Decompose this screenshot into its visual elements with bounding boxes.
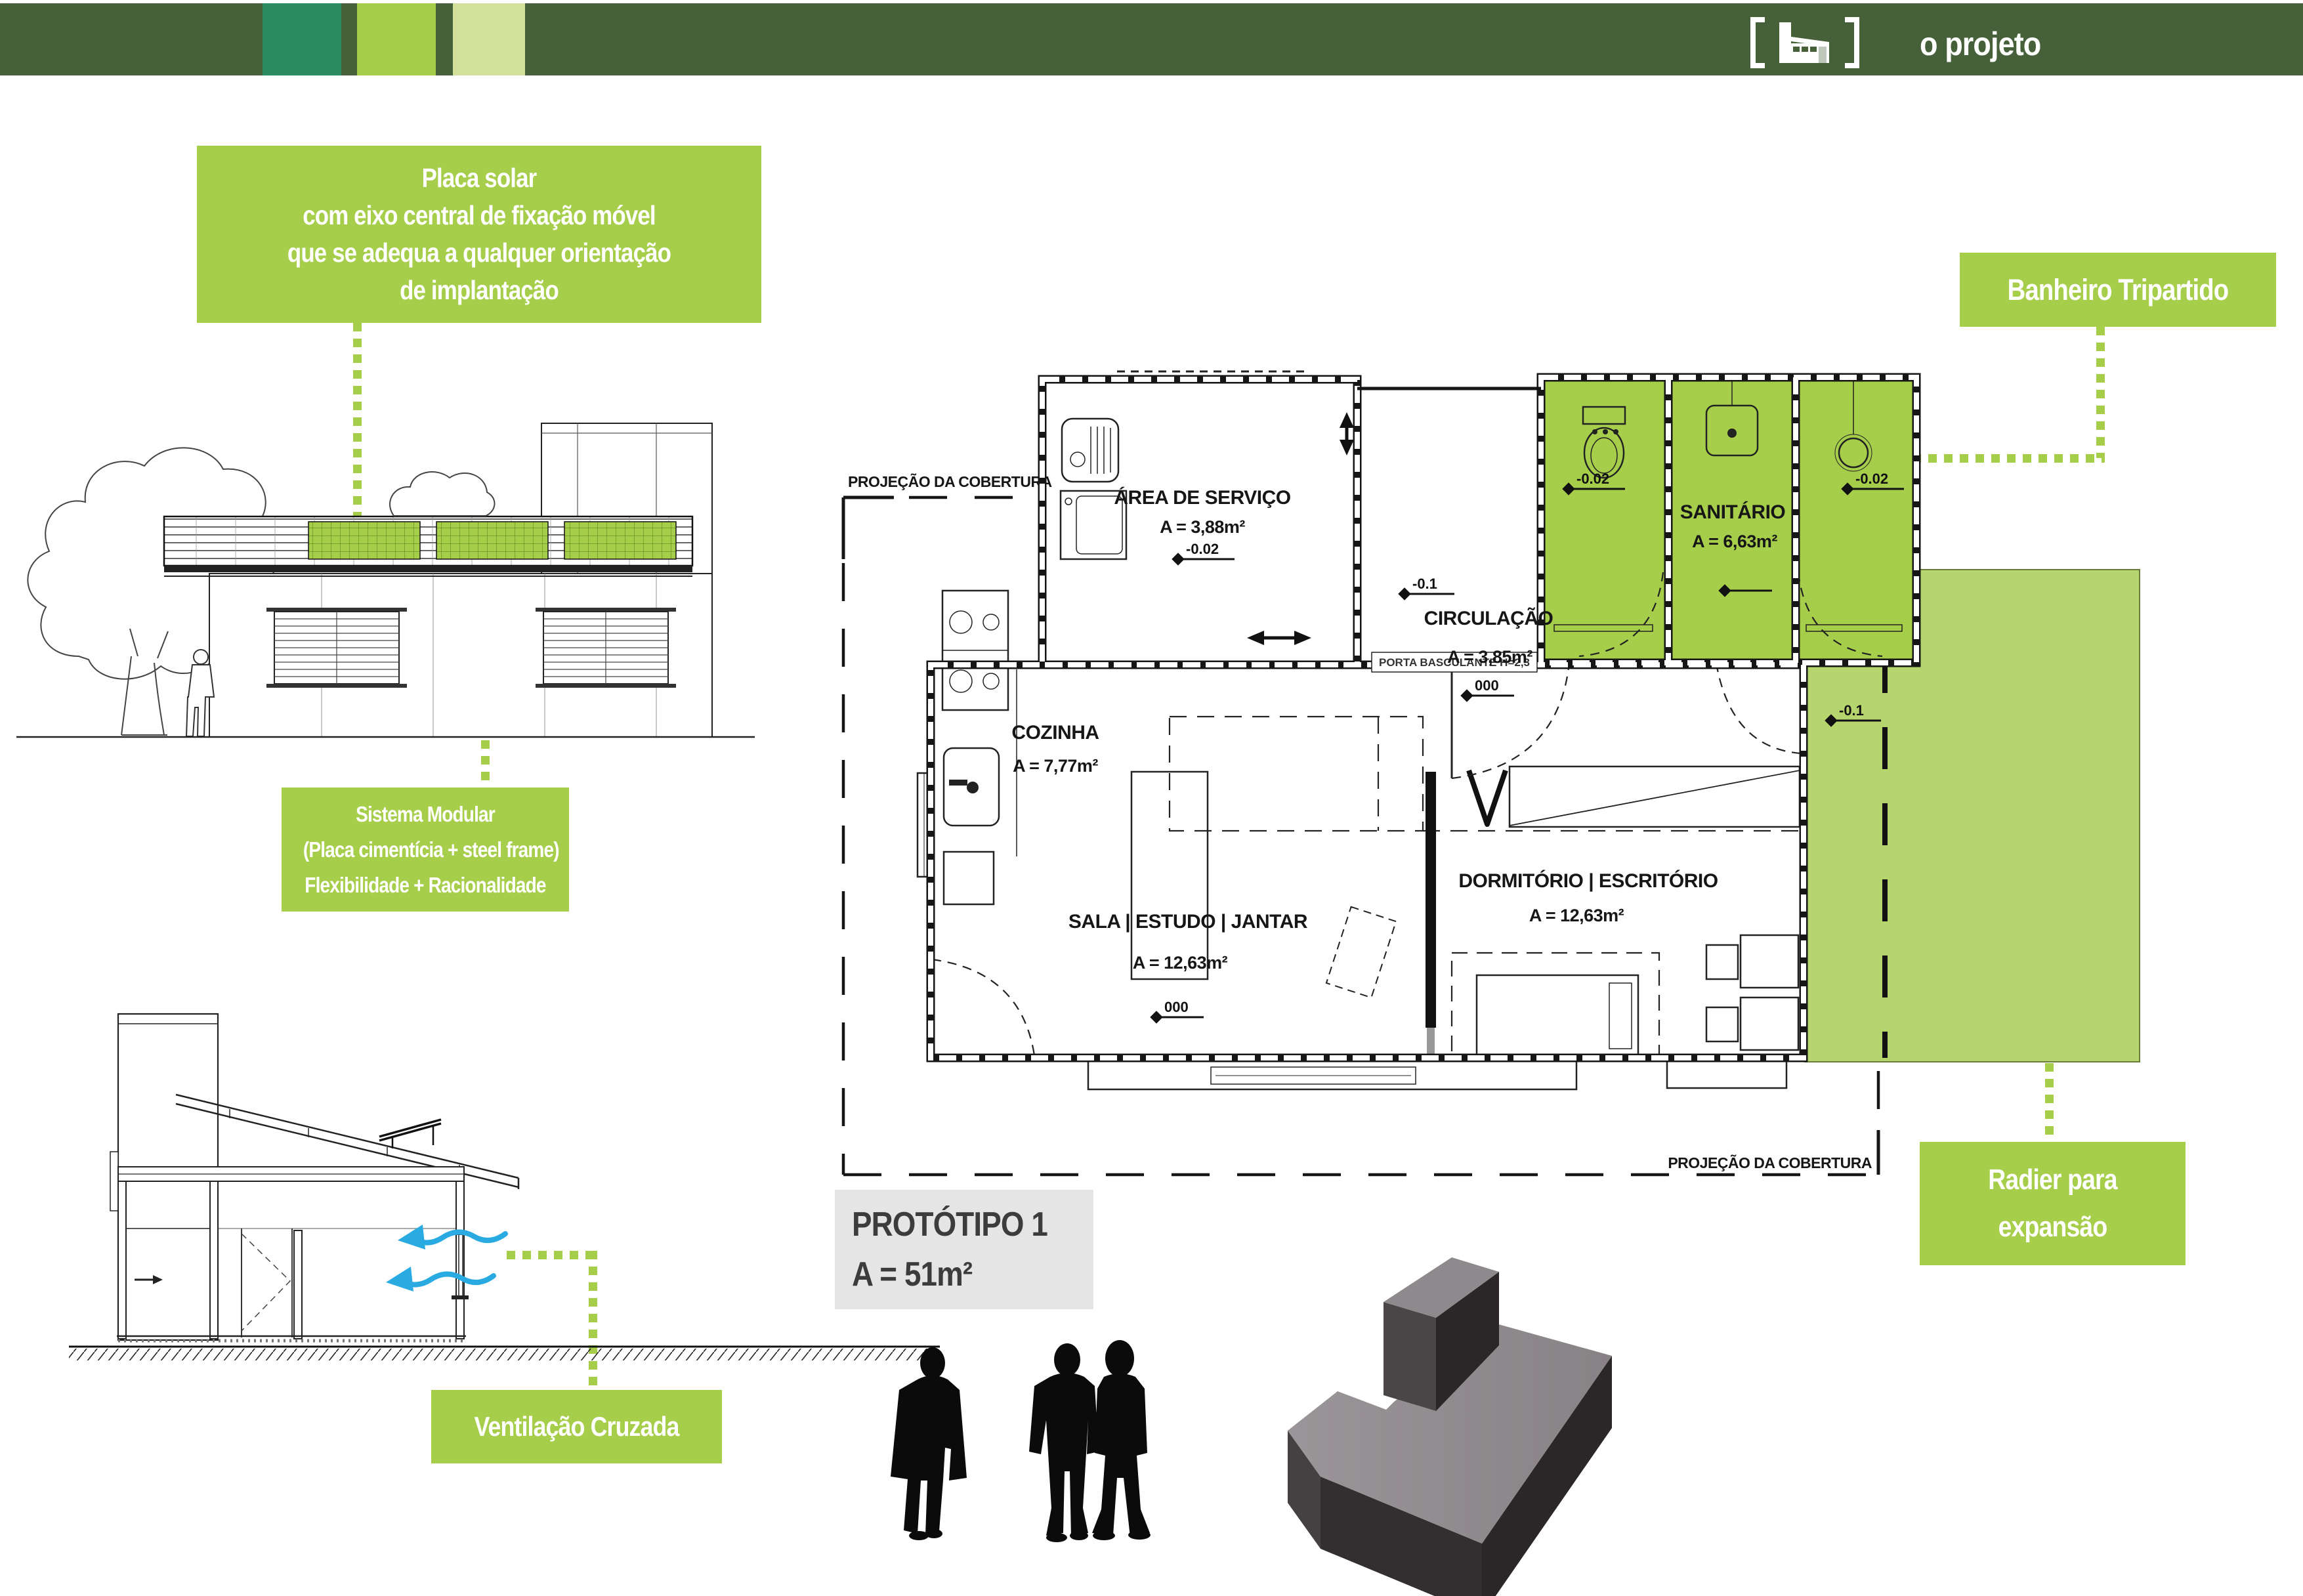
louver-window [536,608,676,688]
tree-icon [390,472,494,516]
svg-text:-0.1: -0.1 [1412,576,1437,592]
room-area: A = 12,63m² [1529,906,1624,925]
page-title: o projeto [1920,25,2168,63]
svg-text:000: 000 [1475,677,1499,694]
callout-line: Placa solar [240,159,719,197]
svg-text:-0.02: -0.02 [1186,541,1219,557]
roof-projection-label-top: PROJEÇÃO DA COBERTURA [848,472,1052,490]
callout-sistema-modular: Sistema Modular (Placa cimentícia + stee… [282,787,569,912]
callout-placa-solar: Placa solar com eixo central de fixação … [197,146,761,323]
wedge-shelf [1510,766,1800,827]
person-silhouette-icon [1029,1343,1099,1542]
section-door [242,1228,292,1337]
people-silhouettes [873,1332,1175,1595]
callout-line: Banheiro Tripartido [1983,253,2252,327]
roof-projection-label-bottom: PROJEÇÃO DA COBERTURA [1668,1154,1872,1171]
callout-line: (Placa cimentícia + steel frame) [303,832,547,868]
room-area: A = 7,77m² [1013,756,1098,776]
chair-dashed [1326,907,1396,997]
partition-wall [1426,772,1436,1028]
prototype-area: A = 51m² [852,1249,1065,1299]
wind-arrowhead-icon [386,1267,413,1291]
room-name: CIRCULAÇÃO [1424,607,1553,629]
color-swatch-lightgreen [453,3,525,75]
partition-tail [1427,1028,1435,1057]
level-marker: 000 [1151,999,1204,1023]
massing-3d [1247,1240,1641,1596]
floor-plan: PROJEÇÃO DA COBERTURA PROJEÇÃO DA COBERT… [814,361,2205,1194]
level-marker: 000 [1461,677,1514,702]
callout-banheiro-tripartido: Banheiro Tripartido [1960,253,2276,327]
v-symbol [1469,770,1506,824]
svg-text:-0.02: -0.02 [1855,471,1888,487]
opening-arrow-icon [1247,412,1354,645]
callout-line: que se adequa a qualquer orientação [240,234,719,272]
person-silhouette-icon [891,1347,967,1540]
elevation-drawing [13,394,761,748]
louver-window [266,608,407,688]
laundry-sink-icon [1062,419,1118,482]
presentation-board: o projeto Placa solar com eixo central d… [0,0,2303,1596]
room-area: A = 3,85m² [1447,647,1532,667]
solar-panel-icon [308,522,420,559]
svg-text:-0.02: -0.02 [1576,471,1609,487]
desk-icon [1706,935,1798,1050]
prototype-title: PROTÓTIPO 1 [852,1200,1065,1249]
callout-line: Ventilação Cruzada [453,1390,700,1463]
callout-line: expansão [1939,1204,2165,1251]
svg-text:-0.1: -0.1 [1839,702,1864,719]
room-area: A = 6,63m² [1692,532,1777,551]
room-name: ÁREA DE SERVIÇO [1114,486,1290,509]
solar-panel-icon [436,522,548,559]
room-area: A = 3,88m² [1160,517,1245,537]
level-marker: -0.1 [1399,576,1454,600]
room-area: A = 12,63m² [1133,953,1228,973]
stove-icon [942,591,1008,710]
bracket-right-icon [1845,20,1857,66]
prototype-label-box: PROTÓTIPO 1 A = 51m² [835,1190,1093,1309]
house-glyph-icon [1779,22,1829,63]
solar-panel-band [164,516,692,576]
person-silhouette-icon [1092,1340,1151,1540]
room-name: DORMITÓRIO | ESCRITÓRIO [1458,870,1718,892]
room-name: SALA | ESTUDO | JANTAR [1068,911,1308,933]
callout-line: com eixo central de fixação móvel [240,197,719,234]
room-name: COZINHA [1011,722,1099,744]
header-bar: o projeto [0,3,2303,75]
ground-hatch [69,1349,940,1360]
svg-text:000: 000 [1164,999,1189,1015]
kitchen-sink-icon [944,748,999,826]
callout-line: de implantação [240,272,719,309]
color-swatch-lime [357,3,436,75]
callout-line: Sistema Modular [303,797,547,832]
color-swatch-teal [263,3,341,75]
house-in-brackets-icon [1743,14,1867,71]
solar-panel-section-icon [379,1120,441,1141]
callout-ventilacao-cruzada: Ventilação Cruzada [431,1390,722,1463]
cabinet [944,852,994,904]
solar-panel-icon [564,522,676,559]
level-marker: -0.02 [1172,541,1235,565]
bed-icon [1452,953,1659,1058]
bracket-left-icon [1753,20,1765,66]
callout-line: Flexibilidade + Racionalidade [303,868,547,903]
room-name: SANITÁRIO [1680,501,1786,523]
